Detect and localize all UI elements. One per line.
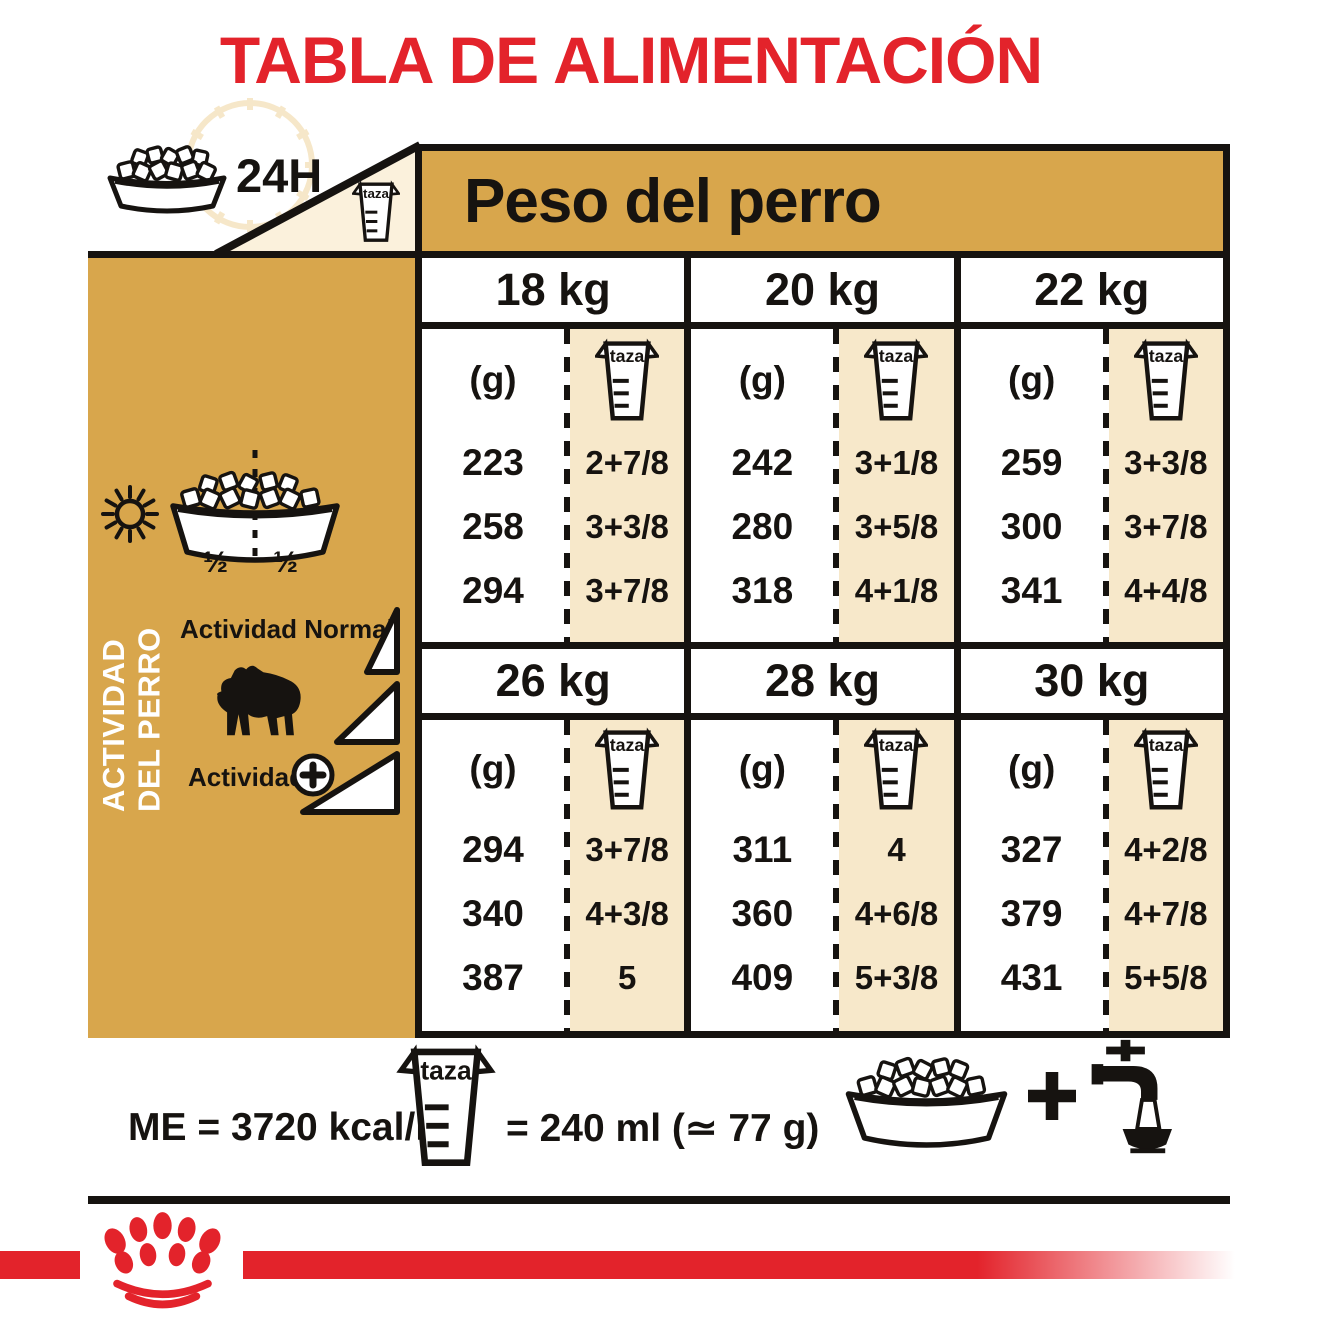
grams-header: (g) xyxy=(691,720,833,818)
taza-cup-label: taza xyxy=(879,735,914,755)
cups-value: 4+2/8 xyxy=(1109,818,1223,882)
grams-value: 327 xyxy=(961,818,1103,882)
column-20kg: 20 kg (g) 242 280 318 xyxy=(684,258,953,642)
grams-value: 341 xyxy=(961,559,1103,623)
cups-value: 3+3/8 xyxy=(1109,431,1223,495)
cups-value: 3+1/8 xyxy=(839,431,953,495)
water-tap-icon xyxy=(1080,1038,1172,1158)
half-portion-left: ½ xyxy=(203,546,228,580)
royal-canin-crown-logo xyxy=(90,1208,235,1310)
cup-volume-label: = 240 ml (≃ 77 g) xyxy=(506,1106,819,1151)
measuring-cup-icon: taza xyxy=(595,338,659,422)
half-portion-right: ½ xyxy=(273,546,298,580)
grams-header: (g) xyxy=(691,329,833,431)
column-28kg: 28 kg (g) 311 360 409 xyxy=(684,649,953,1031)
cups-value: 3+7/8 xyxy=(570,559,684,623)
sidebar-vertical-line2: DEL PERRO xyxy=(132,612,168,812)
weight-label: 30 kg xyxy=(961,649,1223,720)
moon-icon xyxy=(352,488,396,538)
page-title: TABLA DE ALIMENTACIÓN xyxy=(0,22,1262,98)
grams-header: (g) xyxy=(422,720,564,818)
cups-value: 3+5/8 xyxy=(839,495,953,559)
plus-icon xyxy=(1028,1072,1076,1120)
sidebar-vertical-label: ACTIVIDAD DEL PERRO xyxy=(96,612,167,812)
cups-value: 3+3/8 xyxy=(570,495,684,559)
measuring-cup-icon: taza xyxy=(1134,727,1198,811)
grams-value: 259 xyxy=(961,431,1103,495)
plus-circle-icon xyxy=(290,752,336,798)
taza-cup-label: taza xyxy=(420,1056,472,1086)
kibble-bowl-icon xyxy=(837,1042,1015,1157)
cups-value: 4+1/8 xyxy=(839,559,953,623)
measuring-cup-icon: taza xyxy=(864,338,928,422)
activity-wedge-medium xyxy=(337,684,397,742)
cups-value: 2+7/8 xyxy=(570,431,684,495)
weight-header-title: Peso del perro xyxy=(422,166,881,237)
taza-cup-label: taza xyxy=(363,186,390,201)
feeding-table: 18 kg (g) 223 258 294 xyxy=(415,251,1230,1038)
cups-value: 4+3/8 xyxy=(570,882,684,946)
weight-label: 20 kg xyxy=(691,258,953,329)
sidebar-vertical-line1: ACTIVIDAD xyxy=(96,612,132,812)
grams-header: (g) xyxy=(961,720,1103,818)
sun-icon xyxy=(98,482,162,546)
grams-value: 294 xyxy=(422,559,564,623)
column-26kg: 26 kg (g) 294 340 387 xyxy=(422,649,684,1031)
grams-value: 360 xyxy=(691,882,833,946)
cups-value: 3+7/8 xyxy=(1109,495,1223,559)
grams-header: (g) xyxy=(422,329,564,431)
grams-value: 318 xyxy=(691,559,833,623)
column-30kg: 30 kg (g) 327 379 431 xyxy=(954,649,1223,1031)
cups-value: 5 xyxy=(570,946,684,1010)
taza-cup-label: taza xyxy=(1149,735,1184,755)
brand-bar-right xyxy=(243,1251,1235,1279)
grams-value: 242 xyxy=(691,431,833,495)
activity-wedge-small xyxy=(367,610,397,672)
weight-group-2: 26 kg (g) 294 340 387 xyxy=(422,649,1223,1031)
feeding-table-page: TABLA DE ALIMENTACIÓN xyxy=(0,0,1320,1320)
brand-bar-left xyxy=(0,1251,80,1279)
weight-label: 28 kg xyxy=(691,649,953,720)
cups-value: 4+4/8 xyxy=(1109,559,1223,623)
grams-value: 340 xyxy=(422,882,564,946)
measuring-cup-icon: taza xyxy=(1134,338,1198,422)
taza-cup-label: taza xyxy=(610,735,645,755)
weight-label: 22 kg xyxy=(961,258,1223,329)
grams-value: 409 xyxy=(691,946,833,1010)
measuring-cup-icon: taza xyxy=(864,727,928,811)
grams-value: 379 xyxy=(961,882,1103,946)
grams-value: 387 xyxy=(422,946,564,1010)
taza-cup-label: taza xyxy=(879,346,914,366)
taza-cup-label: taza xyxy=(1149,346,1184,366)
grams-value: 300 xyxy=(961,495,1103,559)
footer-divider xyxy=(88,1196,1230,1204)
weight-group-1: 18 kg (g) 223 258 294 xyxy=(422,258,1223,649)
cups-value: 4+6/8 xyxy=(839,882,953,946)
weight-label: 18 kg xyxy=(422,258,684,329)
column-18kg: 18 kg (g) 223 258 294 xyxy=(422,258,684,642)
measuring-cup-icon: taza xyxy=(595,727,659,811)
grams-value: 294 xyxy=(422,818,564,882)
grams-value: 431 xyxy=(961,946,1103,1010)
weight-header-band: Peso del perro xyxy=(415,144,1230,258)
grams-value: 223 xyxy=(422,431,564,495)
measuring-cup-icon: taza xyxy=(396,1044,496,1168)
weight-label: 26 kg xyxy=(422,649,684,720)
cups-value: 5+5/8 xyxy=(1109,946,1223,1010)
cups-value: 4+7/8 xyxy=(1109,882,1223,946)
cups-value: 3+7/8 xyxy=(570,818,684,882)
kibble-bowl-icon xyxy=(160,448,350,588)
grams-value: 280 xyxy=(691,495,833,559)
taza-cup-label: taza xyxy=(610,346,645,366)
measuring-cup-icon: taza xyxy=(352,180,400,243)
grams-header: (g) xyxy=(961,329,1103,431)
column-22kg: 22 kg (g) 259 300 341 xyxy=(954,258,1223,642)
grams-value: 258 xyxy=(422,495,564,559)
cups-value: 4 xyxy=(839,818,953,882)
cups-value: 5+3/8 xyxy=(839,946,953,1010)
grams-value: 311 xyxy=(691,818,833,882)
plus-activity-label: Actividad xyxy=(188,762,305,793)
